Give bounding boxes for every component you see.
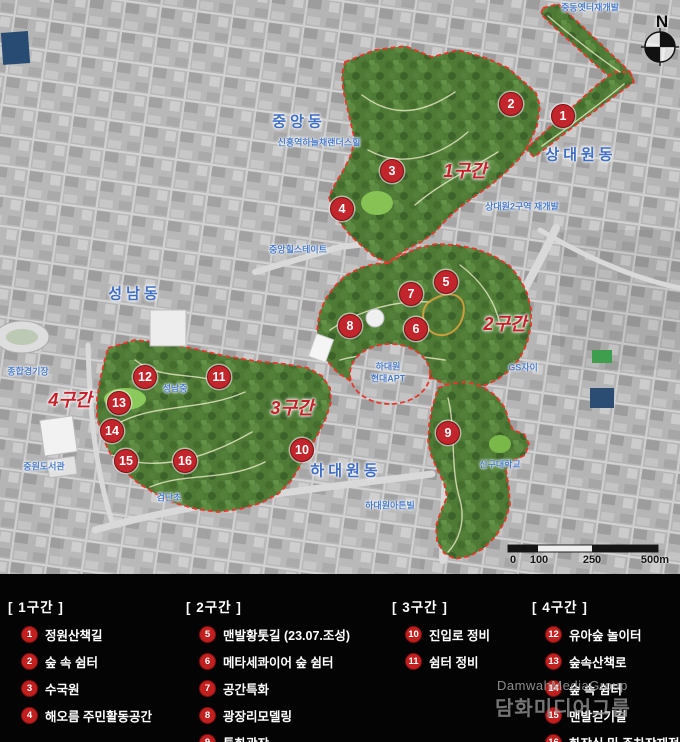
legend-item-13: 13숲속산책로 [545,652,680,671]
zone-label-4: 4구간 [48,386,91,412]
map-marker-14: 14 [100,419,124,443]
legend-item-number-1: 1 [21,626,38,643]
place-label-13: 하대원아튼빌 [365,499,415,512]
legend-item-label-7: 공간특화 [223,679,269,698]
scale-label-100: 100 [530,554,548,566]
park-map: 중앙동상대원동성남동하대원동중동옛터재개발신흥역하늘채랜더스힐상대원2구역 재개… [0,0,680,574]
scale-label-250: 250 [583,554,601,566]
legend-item-number-9: 9 [199,734,216,742]
legend-item-number-13: 13 [545,653,562,670]
district-label-1: 중앙동 [272,111,325,132]
legend-item-5: 5맨발황톳길 (23.07.조성) [199,625,350,644]
place-label-12: 검단초 [157,491,182,504]
map-marker-3: 3 [380,159,404,183]
legend-item-label-1: 정원산책길 [45,625,103,644]
legend-item-number-4: 4 [21,707,38,724]
map-marker-10: 10 [290,438,314,462]
map-marker-5: 5 [434,270,458,294]
map-marker-16: 16 [173,449,197,473]
legend-item-number-5: 5 [199,626,216,643]
legend-item-9: 9특화광장 [199,733,350,742]
map-marker-12: 12 [133,365,157,389]
place-label-11: 중원도서관 [23,460,64,473]
legend-item-number-6: 6 [199,653,216,670]
legend-item-label-3: 수국원 [45,679,80,698]
legend-item-12: 12유아숲 놀이터 [545,625,680,644]
map-marker-1: 1 [551,104,575,128]
compass-north-label: N [656,12,668,32]
map-marker-11: 11 [207,365,231,389]
legend-item-7: 7공간특화 [199,679,350,698]
zone-label-2: 2구간 [483,310,526,336]
place-label-6: 종합경기장 [7,365,48,378]
legend-section-3: [ 3구간 ]10진입로 정비11쉼터 정비 [392,596,490,679]
legend-item-3: 3수국원 [21,679,152,698]
legend-item-6: 6메타세콰이어 숲 쉼터 [199,652,350,671]
legend-item-number-2: 2 [21,653,38,670]
legend-item-label-11: 쉼터 정비 [429,652,478,671]
legend-section-2: [ 2구간 ]5맨발황톳길 (23.07.조성)6메타세콰이어 숲 쉼터7공간특… [186,596,350,742]
legend-item-label-10: 진입로 정비 [429,625,490,644]
legend-item-8: 8광장리모델링 [199,706,350,725]
legend-item-11: 11쉼터 정비 [405,652,490,671]
scale-label-500m: 500m [641,554,669,566]
legend-item-number-12: 12 [545,626,562,643]
legend-item-2: 2숲 속 쉼터 [21,652,152,671]
map-marker-7: 7 [399,282,423,306]
map-overlays: 중앙동상대원동성남동하대원동중동옛터재개발신흥역하늘채랜더스힐상대원2구역 재개… [0,0,680,574]
map-marker-6: 6 [404,317,428,341]
district-label-3: 성남동 [108,283,161,304]
legend-item-label-5: 맨발황톳길 (23.07.조성) [223,625,350,644]
map-marker-4: 4 [330,197,354,221]
legend-item-number-3: 3 [21,680,38,697]
legend-section-title-2: [ 2구간 ] [186,596,350,616]
legend-item-number-8: 8 [199,707,216,724]
legend-item-number-7: 7 [199,680,216,697]
legend-item-1: 1정원산책길 [21,625,152,644]
legend-item-label-2: 숲 속 쉼터 [45,652,98,671]
zone-label-1: 1구간 [443,157,486,183]
legend-section-title-4: [ 4구간 ] [532,596,680,616]
park-plan-image: 중앙동상대원동성남동하대원동중동옛터재개발신흥역하늘채랜더스힐상대원2구역 재개… [0,0,680,742]
legend-item-number-11: 11 [405,653,422,670]
place-label-4: 중앙힐스테이트 [269,243,327,256]
map-marker-13: 13 [107,391,131,415]
legend-item-label-6: 메타세콰이어 숲 쉼터 [223,652,333,671]
legend-section-title-1: [ 1구간 ] [8,596,152,616]
legend-item-16: 16화장실 및 주차장재정비 [545,733,680,742]
legend-item-label-9: 특화광장 [223,733,269,742]
legend-section-title-3: [ 3구간 ] [392,596,490,616]
legend-item-label-8: 광장리모델링 [223,706,292,725]
legend-item-label-12: 유아숲 놀이터 [569,625,641,644]
place-label-2: 신흥역하늘채랜더스힐 [278,136,361,149]
legend-item-4: 4해오름 주민활동공간 [21,706,152,725]
legend-item-label-4: 해오름 주민활동공간 [45,706,152,725]
map-marker-9: 9 [436,421,460,445]
place-label-8: 현대APT [371,372,406,385]
place-label-9: GS자이 [508,361,538,374]
watermark-korean: 담화미디어그룹 [495,692,631,721]
legend-item-number-16: 16 [545,734,562,742]
district-label-2: 상대원동 [545,144,616,165]
place-label-10: 신구대학교 [479,458,520,471]
scale-label-0: 0 [510,554,516,566]
legend-item-label-13: 숲속산책로 [569,652,627,671]
map-marker-15: 15 [114,449,138,473]
legend-section-1: [ 1구간 ]1정원산책길2숲 속 쉼터3수국원4해오름 주민활동공간 [8,596,152,733]
map-marker-8: 8 [338,314,362,338]
place-label-1: 중동옛터재개발 [561,1,619,14]
place-label-3: 상대원2구역 재개발 [485,200,559,213]
place-label-5: 성남중 [163,382,188,395]
district-label-4: 하대원동 [310,460,381,481]
legend-item-10: 10진입로 정비 [405,625,490,644]
legend-item-label-16: 화장실 및 주차장재정비 [569,733,680,742]
watermark-latin: DamwahMediaGroup [497,678,628,693]
legend-item-number-10: 10 [405,626,422,643]
zone-label-3: 3구간 [270,394,313,420]
map-marker-2: 2 [499,92,523,116]
